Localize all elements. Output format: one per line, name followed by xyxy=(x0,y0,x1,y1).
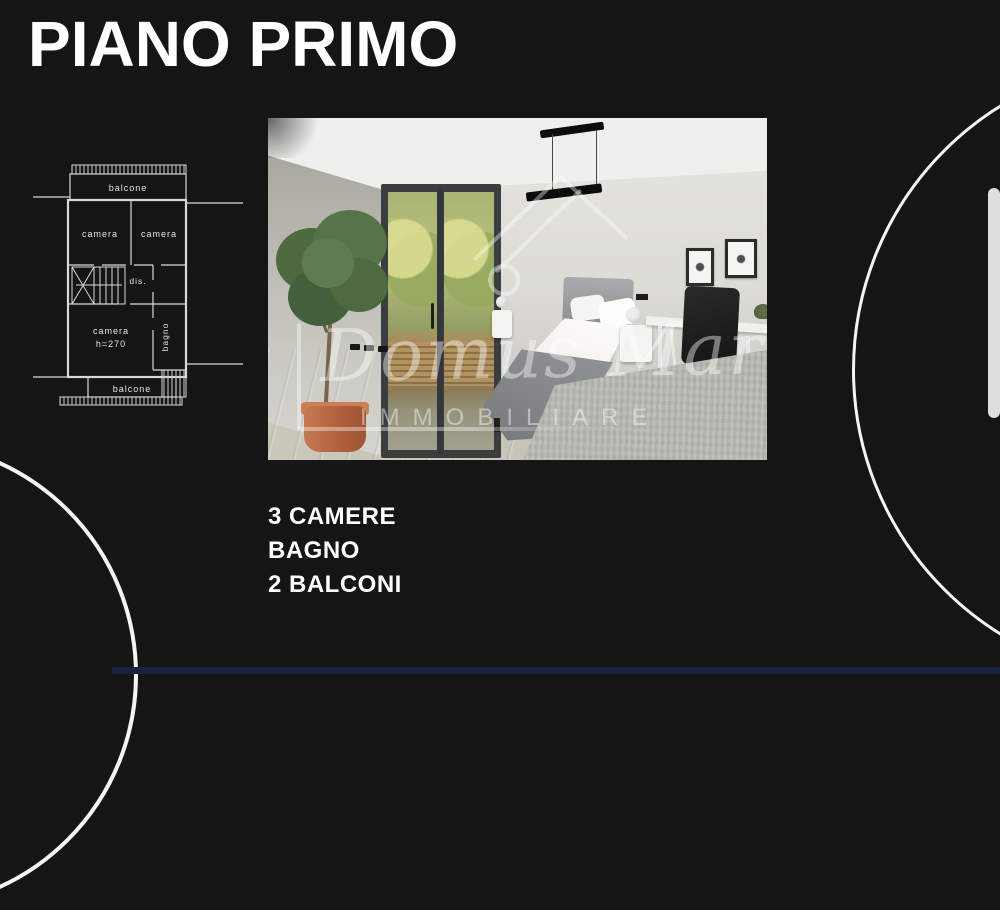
decor-circle-right xyxy=(852,58,1000,682)
feature-line-bath: BAGNO xyxy=(268,534,402,568)
plan-label-camera-left: camera xyxy=(82,229,118,239)
plan-labels: balcone camera camera dis. camera h=270 … xyxy=(82,183,177,394)
watermark-roof-line xyxy=(495,189,583,274)
watermark-bracket xyxy=(297,323,301,429)
plan-label-balcone-top: balcone xyxy=(109,183,148,193)
feature-line-balconies: 2 BALCONI xyxy=(268,568,402,602)
watermark-ring xyxy=(488,264,520,296)
bottom-accent-strip xyxy=(112,667,1000,674)
watermark-roof-line xyxy=(559,175,629,241)
plan-label-dis: dis. xyxy=(129,276,146,286)
agency-watermark: Domus Mare' IMMOBILIARE xyxy=(268,118,767,460)
decor-circle-bottom-left xyxy=(0,440,138,910)
balcony-bottom-railing xyxy=(60,397,182,405)
balcony-bottom-right-hatch xyxy=(162,370,186,397)
plan-label-balcone-bottom: balcone xyxy=(113,384,152,394)
page-title: PIANO PRIMO xyxy=(28,12,458,76)
room-photo: Domus Mare' IMMOBILIARE xyxy=(268,118,767,460)
balcony-top-railing xyxy=(72,165,186,174)
floorplan: balcone camera camera dis. camera h=270 … xyxy=(30,152,245,407)
plan-label-camera-height: h=270 xyxy=(96,339,126,349)
plan-label-bagno: bagno xyxy=(160,323,170,352)
scrollbar[interactable] xyxy=(988,188,1000,418)
slide-root: { "colors": { "background": "#151515", "… xyxy=(0,0,1000,674)
plan-label-camera-right: camera xyxy=(141,229,177,239)
feature-line-rooms: 3 CAMERE xyxy=(268,500,402,534)
watermark-agency-subtitle: IMMOBILIARE xyxy=(360,404,660,432)
plan-label-camera-main: camera xyxy=(93,326,129,336)
feature-list: 3 CAMERE BAGNO 2 BALCONI xyxy=(268,500,402,602)
watermark-agency-name: Domus Mare' xyxy=(319,306,767,398)
floorplan-drawing: balcone camera camera dis. camera h=270 … xyxy=(30,152,245,407)
